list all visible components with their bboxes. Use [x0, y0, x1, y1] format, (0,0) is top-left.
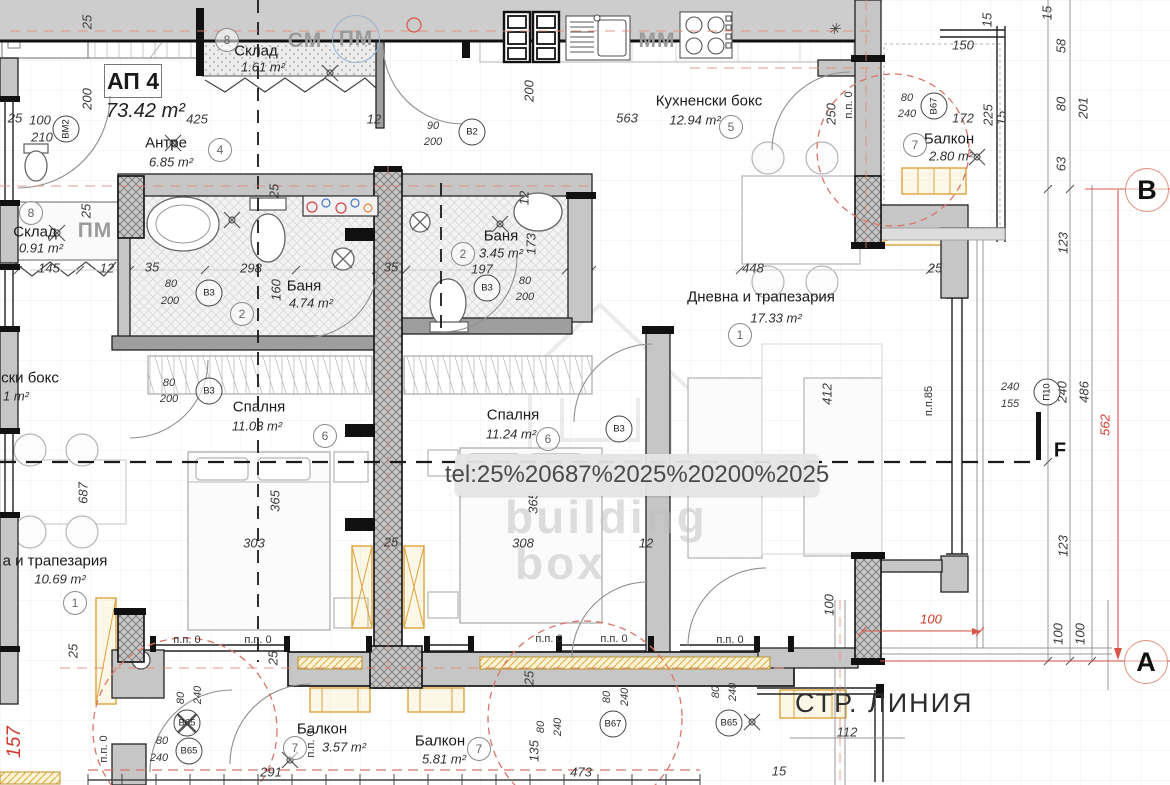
- apartment-id: АП 4: [107, 68, 159, 95]
- watermark-tooltip: tel:25%20687%2025%20200%2025: [455, 454, 819, 496]
- section-flag-bar: [1036, 412, 1041, 460]
- floor-plan-canvas: building box 252002510021042512902002005…: [0, 0, 1170, 785]
- apartment-area: 73.42 m²: [106, 100, 185, 123]
- apartment-id-box: АП 4: [104, 64, 162, 98]
- street-line-label: СТР. ЛИНИЯ: [795, 688, 974, 719]
- kitchen-appliances: [504, 12, 732, 62]
- builder-logo-text-bottom: box: [515, 536, 606, 590]
